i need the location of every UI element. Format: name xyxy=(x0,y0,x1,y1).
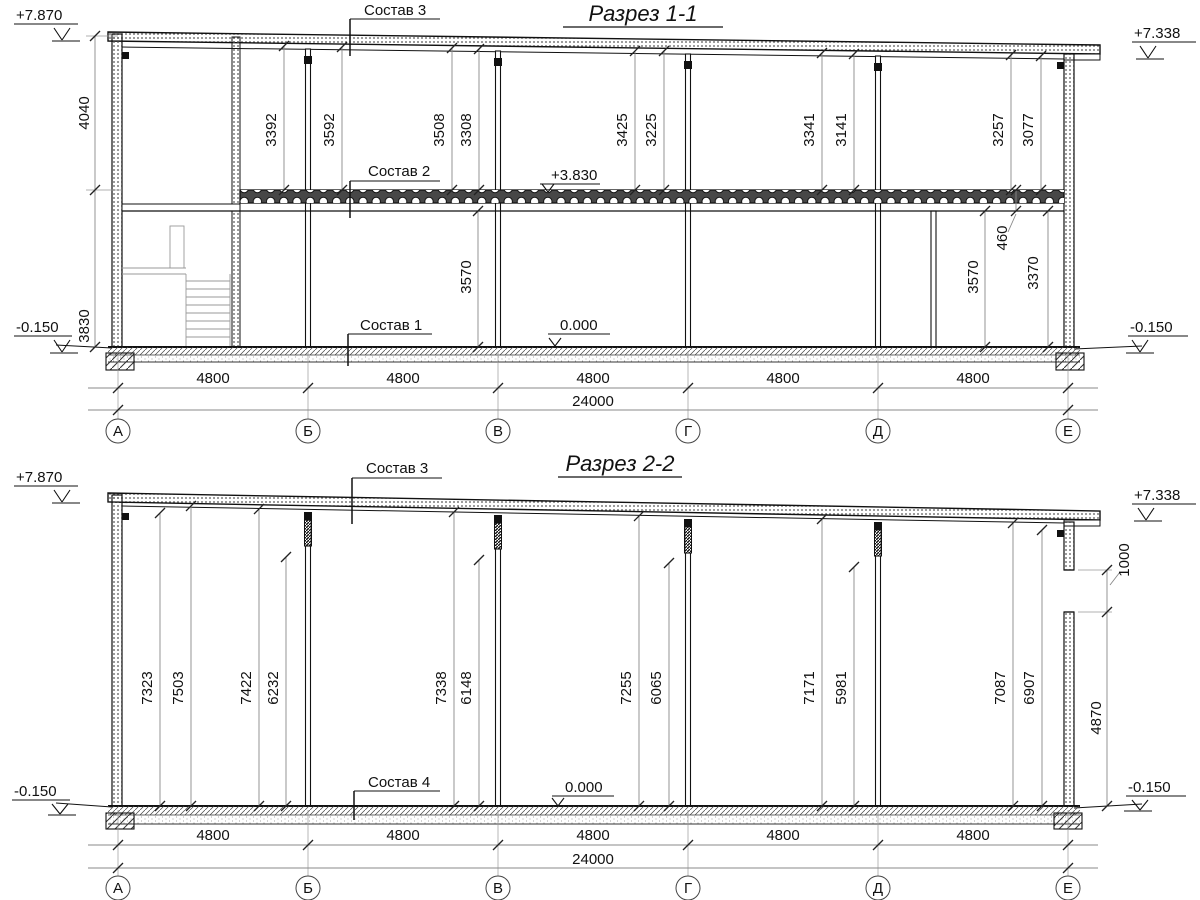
columns xyxy=(122,512,1064,806)
layer-callouts: Состав 3 Состав 2 Состав 1 xyxy=(348,2,440,366)
elevation-bottom-left: -0.150 xyxy=(14,783,57,800)
elevation-floor: 0.000 xyxy=(565,779,603,796)
dim-label: 4870 xyxy=(1088,701,1105,734)
floor-slab-cores xyxy=(240,190,1064,203)
axis-label: А xyxy=(113,880,123,897)
right-wall-upper xyxy=(1064,522,1074,570)
elevation-bottom-right: -0.150 xyxy=(1128,779,1171,796)
grade-line-right xyxy=(1074,346,1142,349)
dim-label: 5981 xyxy=(833,671,850,704)
layers-callout-floor: Состав 1 xyxy=(360,317,422,334)
dim-label: 7422 xyxy=(238,671,255,704)
elevation-bottom-right: -0.150 xyxy=(1130,319,1173,336)
elevation-slab: +3.830 xyxy=(551,167,597,184)
span-dim-labels: 4800 4800 4800 4800 4800 24000 xyxy=(196,827,989,868)
dim-label: 460 xyxy=(994,225,1011,250)
dim-label: 3592 xyxy=(321,113,338,146)
axis-label: Д xyxy=(873,880,883,897)
total-dim-label: 24000 xyxy=(572,851,614,868)
dim-label: 1000 xyxy=(1116,543,1133,576)
axis-label: Е xyxy=(1063,880,1073,897)
dim-label: 4800 xyxy=(386,370,419,387)
dim-label: 3570 xyxy=(458,260,475,293)
section1-title: Разрез 1-1 xyxy=(588,1,697,26)
left-wall xyxy=(112,34,122,347)
dim-label: 4040 xyxy=(76,96,93,129)
axis-label: Е xyxy=(1063,423,1073,440)
dim-label: 4800 xyxy=(196,827,229,844)
total-dim-label: 24000 xyxy=(572,393,614,410)
dim-label: 3392 xyxy=(263,113,280,146)
section2-title: Разрез 2-2 xyxy=(565,451,674,476)
column-caps xyxy=(122,52,1064,71)
layers-callout-roof: Состав 3 xyxy=(366,460,428,477)
foundation-left xyxy=(106,813,134,829)
dim-label: 4800 xyxy=(386,827,419,844)
elevation-top-left: +7.870 xyxy=(16,469,62,486)
floor-screed xyxy=(108,347,1080,355)
foundation-left xyxy=(106,353,134,370)
drawing-sheet: Разрез 1-1 xyxy=(0,0,1200,900)
axis-label: Г xyxy=(684,880,692,897)
right-wall-lower xyxy=(1064,612,1074,806)
axis-bubbles: А Б В Г Д Е xyxy=(106,876,1080,900)
elevation-top-right: +7.338 xyxy=(1134,25,1180,42)
stair-wall xyxy=(232,37,240,347)
dim-label: 3830 xyxy=(76,309,93,342)
dim-label: 6065 xyxy=(648,671,665,704)
dim-label: 6907 xyxy=(1021,671,1038,704)
vertical-dim-labels: 7323 7503 7422 6232 7338 6148 7255 6065 … xyxy=(139,543,1133,734)
dim-label: 7171 xyxy=(801,671,818,704)
dim-label: 6232 xyxy=(265,671,282,704)
dim-label: 7323 xyxy=(139,671,156,704)
layer-callouts: Состав 3 Состав 4 xyxy=(352,460,442,820)
dim-label: 7087 xyxy=(992,671,1009,704)
base-course xyxy=(108,355,1080,362)
axis-label: Д xyxy=(873,423,883,440)
elevation-top-right: +7.338 xyxy=(1134,487,1180,504)
layers-callout-slab: Состав 2 xyxy=(368,163,430,180)
base-course xyxy=(108,815,1080,824)
dim-label: 7503 xyxy=(170,671,187,704)
layers-callout-floor: Состав 4 xyxy=(368,774,430,791)
dim-label: 7338 xyxy=(433,671,450,704)
dim-label: 3341 xyxy=(801,113,818,146)
dim-label: 3508 xyxy=(431,113,448,146)
dim-label: 4800 xyxy=(956,827,989,844)
axis-label: Б xyxy=(303,423,313,440)
dim-label: 4800 xyxy=(766,827,799,844)
elevation-marks: +7.870 +7.338 -0.150 -0.150 0.000 xyxy=(12,469,1196,815)
landing-slab xyxy=(122,204,240,211)
grade-line-left xyxy=(56,803,112,807)
dim-label: 3257 xyxy=(990,113,1007,146)
layers-callout-roof: Состав 3 xyxy=(364,2,426,19)
staircase xyxy=(122,226,230,347)
dim-label: 6148 xyxy=(458,671,475,704)
dim-label: 3570 xyxy=(965,260,982,293)
span-dim-labels: 4800 4800 4800 4800 4800 24000 xyxy=(196,370,989,410)
section-2-2: Разрез 2-2 +7.870 xyxy=(12,451,1196,900)
sections-drawing: Разрез 1-1 xyxy=(0,0,1200,900)
axis-label: Г xyxy=(684,423,692,440)
dim-label: 7255 xyxy=(618,671,635,704)
dim-label: 4800 xyxy=(576,370,609,387)
dim-label: 3425 xyxy=(614,113,631,146)
elevation-floor: 0.000 xyxy=(560,317,598,334)
right-wall xyxy=(1064,54,1074,347)
dim-label: 3308 xyxy=(458,113,475,146)
axis-label: В xyxy=(493,880,503,897)
dim-label: 3225 xyxy=(643,113,660,146)
section-1-1: Разрез 1-1 xyxy=(14,1,1196,443)
dim-label: 4800 xyxy=(576,827,609,844)
dim-label: 4800 xyxy=(956,370,989,387)
foundation-right xyxy=(1056,353,1084,370)
roof-slab xyxy=(108,493,1100,520)
axis-label: Б xyxy=(303,880,313,897)
vertical-dim-labels: 4040 3830 3392 3592 3508 3308 3425 3225 … xyxy=(76,96,1042,342)
dim-label: 4800 xyxy=(196,370,229,387)
axis-label: В xyxy=(493,423,503,440)
elevation-top-left: +7.870 xyxy=(16,7,62,24)
partition-wall xyxy=(931,211,936,347)
roof-slab xyxy=(108,32,1100,54)
axis-bubbles: А Б В Г Д Е xyxy=(106,419,1080,443)
left-wall xyxy=(112,495,122,806)
dim-label: 4800 xyxy=(766,370,799,387)
dim-label: 3141 xyxy=(833,113,850,146)
axis-label: А xyxy=(113,423,123,440)
elevation-bottom-left: -0.150 xyxy=(16,319,59,336)
dim-label: 3370 xyxy=(1025,256,1042,289)
dim-label: 3077 xyxy=(1020,113,1037,146)
